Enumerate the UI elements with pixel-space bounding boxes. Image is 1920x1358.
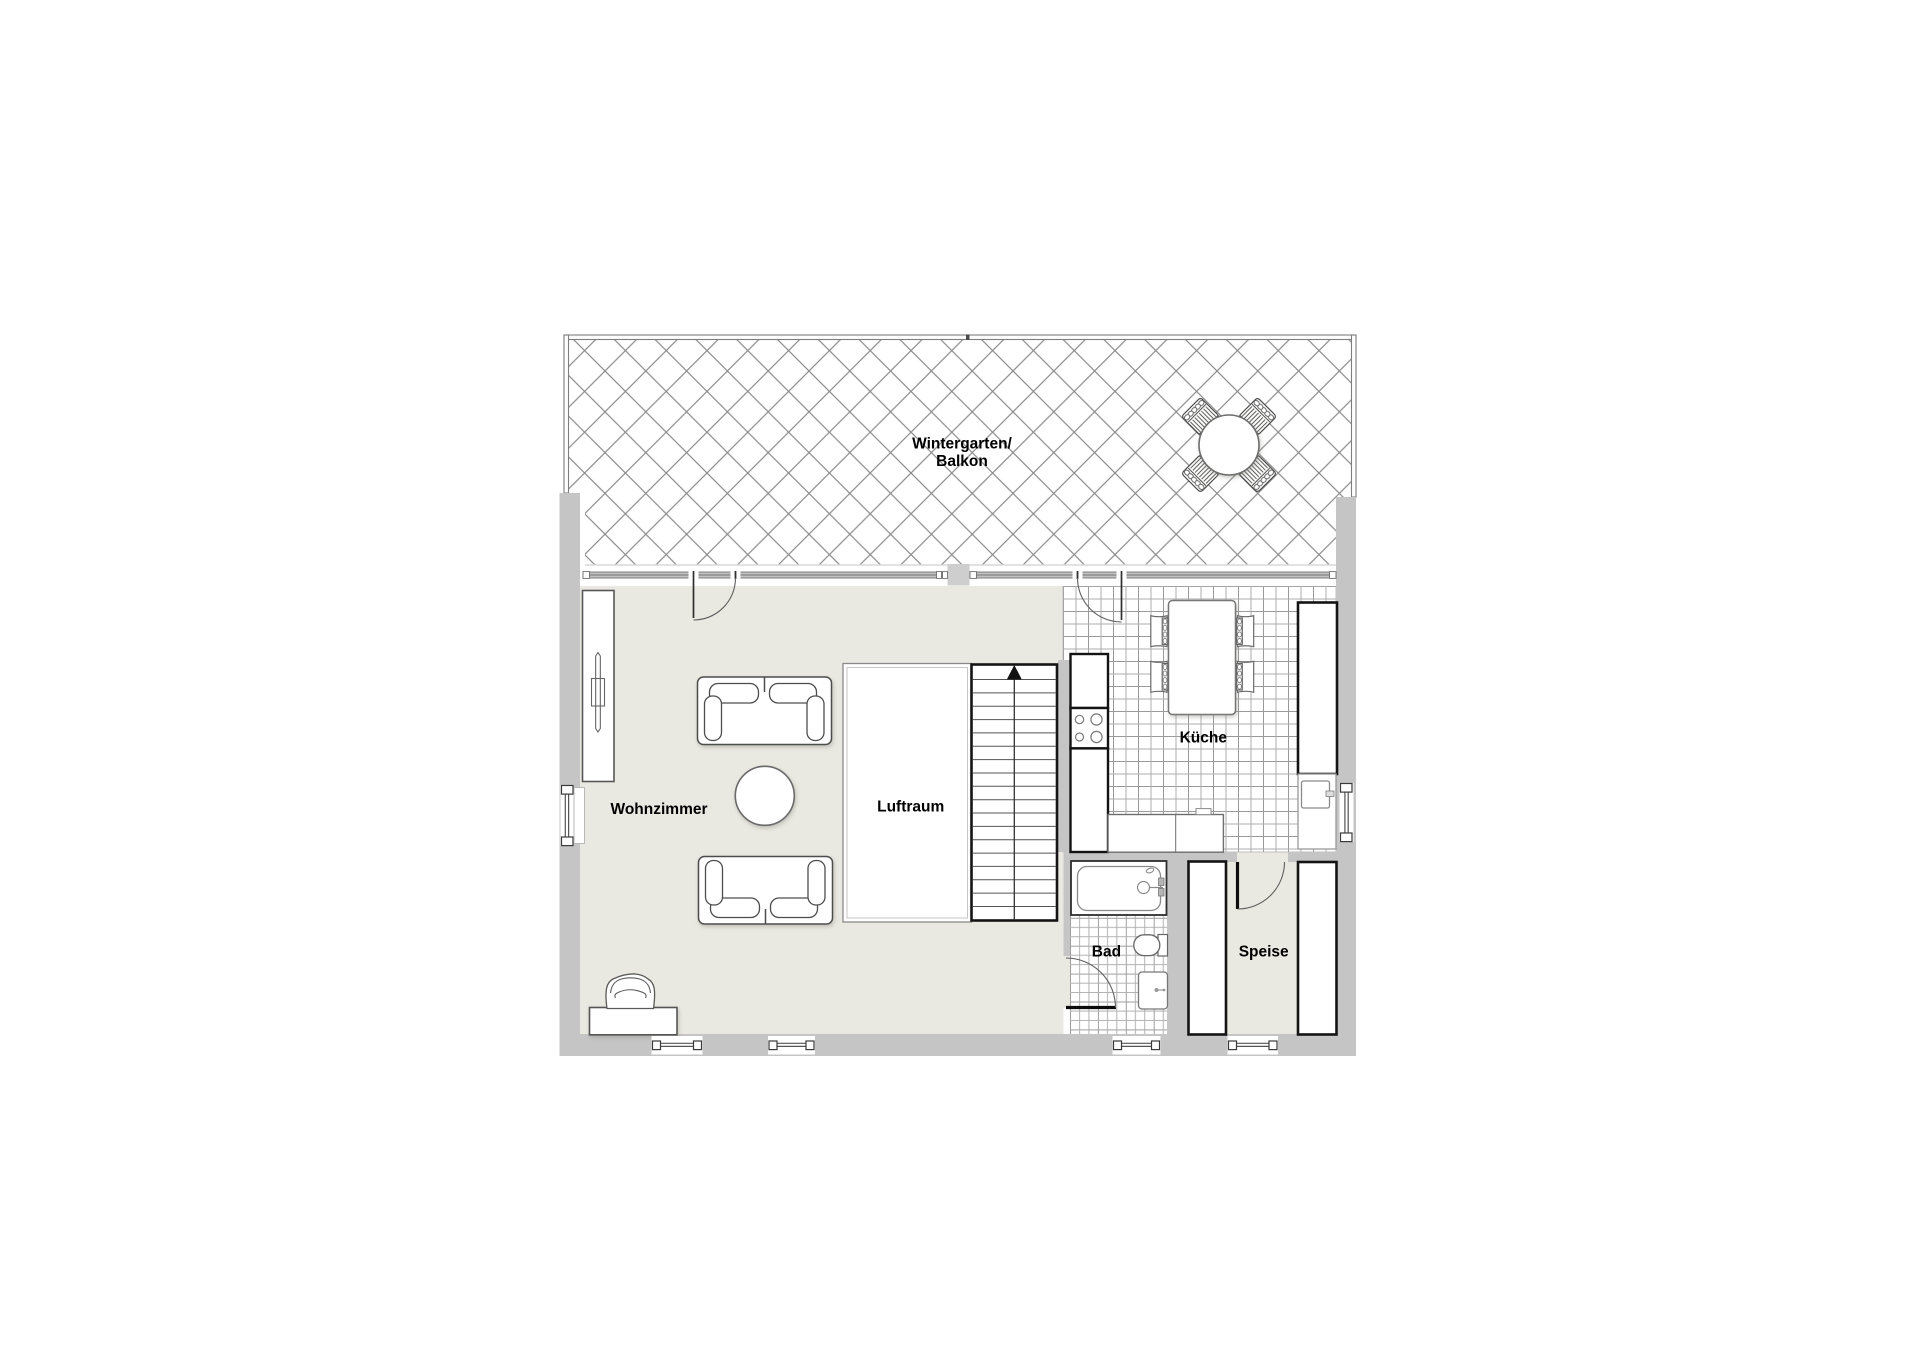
svg-text:Luftraum: Luftraum — [877, 799, 944, 816]
svg-text:Wintergarten/: Wintergarten/ — [912, 436, 1012, 453]
svg-text:Wohnzimmer: Wohnzimmer — [610, 801, 707, 818]
svg-text:Küche: Küche — [1180, 730, 1228, 747]
svg-text:Balkon: Balkon — [936, 453, 988, 470]
svg-text:Speise: Speise — [1239, 944, 1289, 961]
svg-text:Bad: Bad — [1092, 944, 1121, 961]
